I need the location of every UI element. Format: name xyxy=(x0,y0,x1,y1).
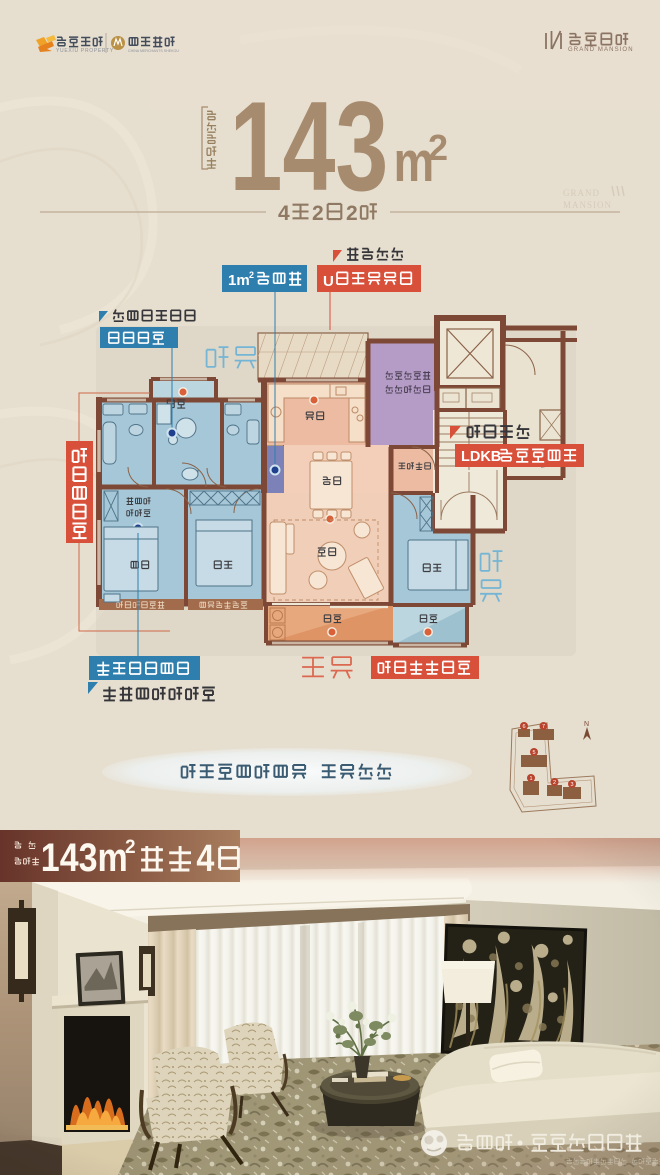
svg-text:4: 4 xyxy=(278,202,290,225)
svg-text:2: 2 xyxy=(312,202,324,225)
svg-text:CHINA MERCHANTS SHEKOU: CHINA MERCHANTS SHEKOU xyxy=(128,49,179,53)
svg-text:143m: 143m xyxy=(41,834,128,879)
svg-text:5: 5 xyxy=(532,750,535,756)
svg-text:6: 6 xyxy=(522,724,525,730)
svg-text:2: 2 xyxy=(249,270,254,280)
svg-text:2: 2 xyxy=(553,780,556,786)
svg-text:2: 2 xyxy=(346,202,358,225)
svg-text:2: 2 xyxy=(125,837,136,858)
svg-text:1: 1 xyxy=(529,776,532,782)
svg-text:7: 7 xyxy=(542,724,545,730)
svg-text:3: 3 xyxy=(570,782,573,788)
svg-text:2: 2 xyxy=(428,127,448,168)
svg-text:MANSION: MANSION xyxy=(563,200,612,210)
svg-text:N: N xyxy=(584,721,589,728)
svg-text:U: U xyxy=(323,273,334,290)
svg-text:LDKB: LDKB xyxy=(461,449,501,465)
svg-text:GRAND: GRAND xyxy=(563,188,600,198)
svg-text:YUEXIU PROPERTY: YUEXIU PROPERTY xyxy=(56,48,114,54)
svg-text:4: 4 xyxy=(196,838,214,880)
svg-text:1m: 1m xyxy=(228,272,250,289)
svg-text:143: 143 xyxy=(230,75,389,218)
svg-text:GRAND MANSION: GRAND MANSION xyxy=(568,47,634,53)
